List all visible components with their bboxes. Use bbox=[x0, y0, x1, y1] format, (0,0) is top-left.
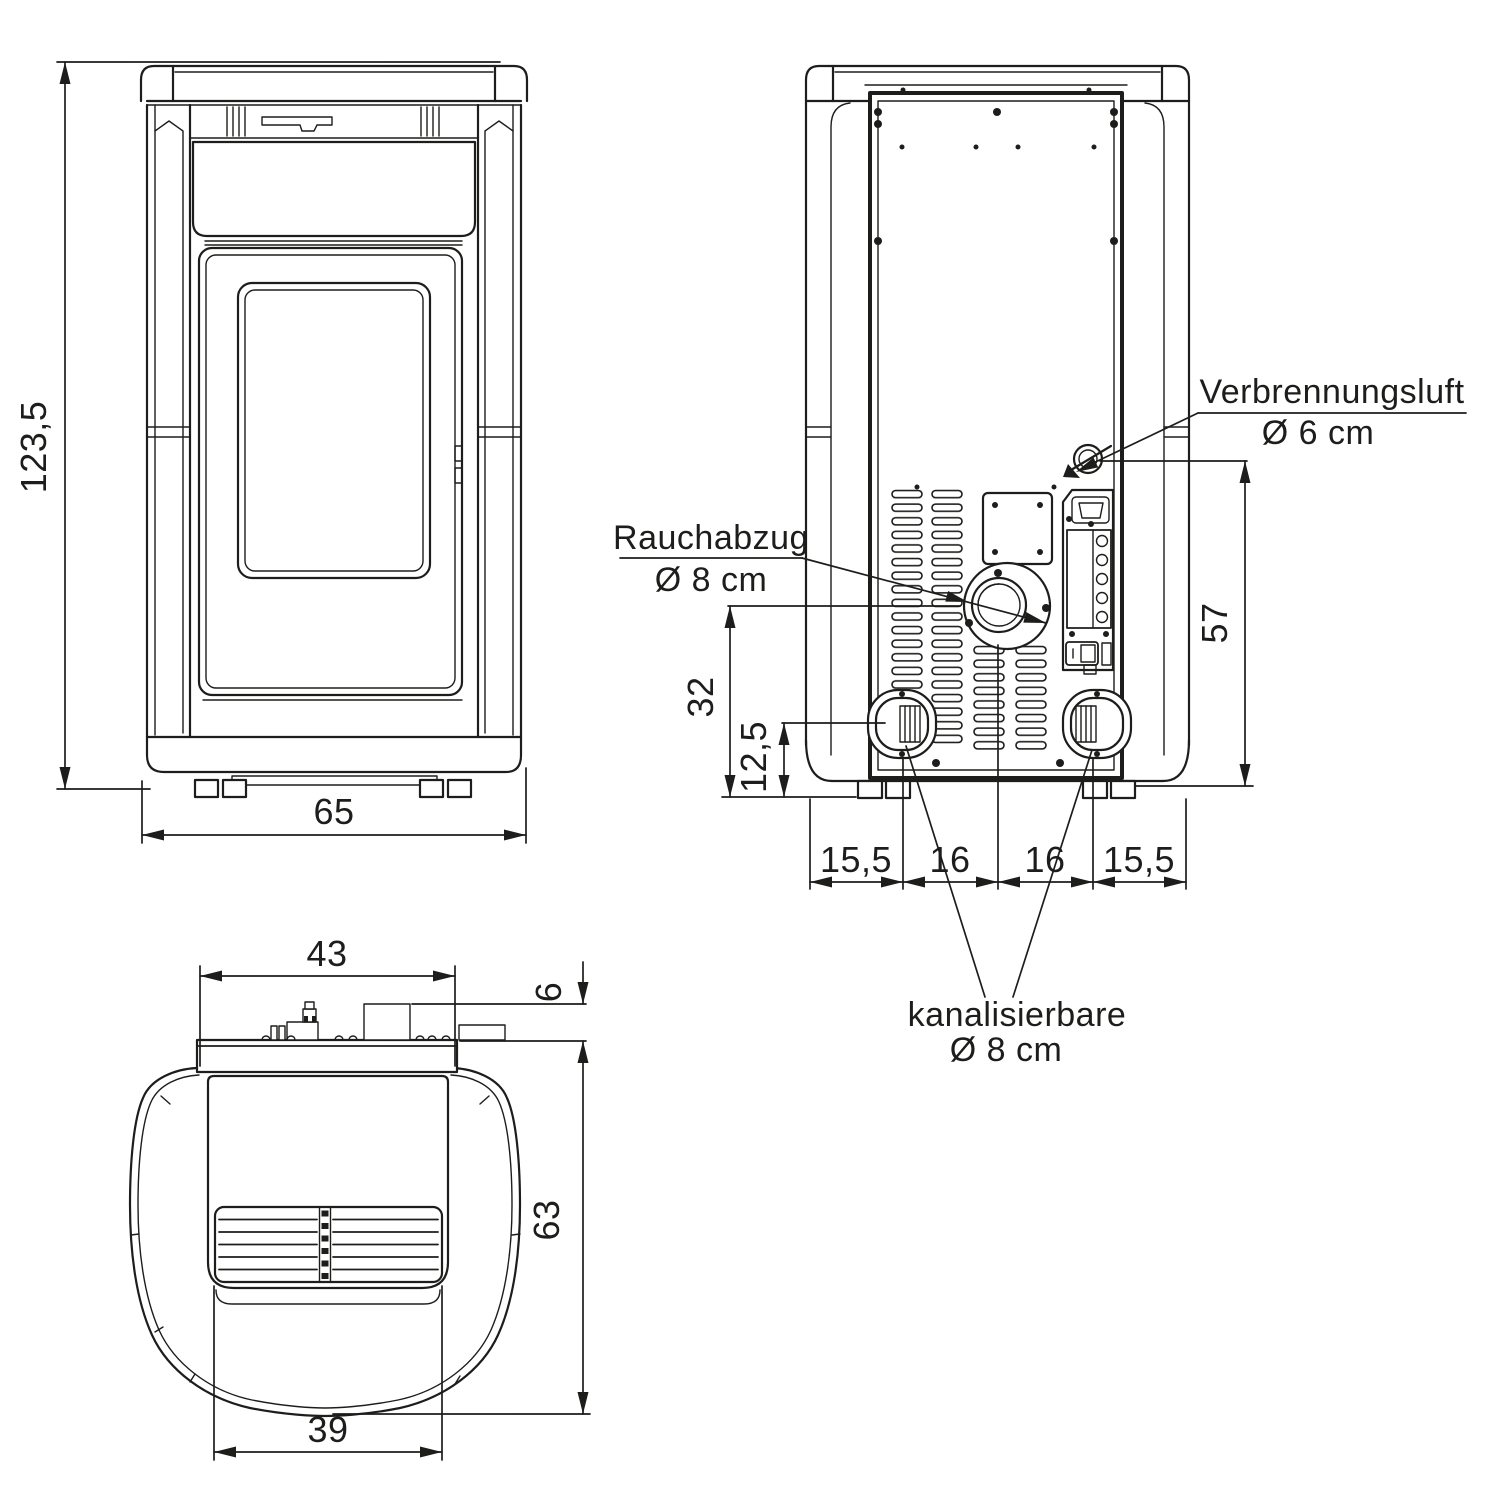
dim-spacing-3: 16 bbox=[1024, 839, 1065, 880]
foot bbox=[448, 780, 471, 797]
dim-duct-height: 12,5 bbox=[733, 721, 774, 793]
foot bbox=[858, 781, 882, 798]
dim-front-height: 123,5 bbox=[13, 401, 54, 494]
pellet-hopper-lid bbox=[193, 142, 475, 236]
duct-outlet-right bbox=[1063, 690, 1131, 758]
door-window bbox=[238, 283, 430, 578]
flue-stub-top bbox=[364, 1004, 410, 1040]
stove-dimension-drawing: 123,5 65 bbox=[0, 0, 1500, 1500]
vent-column bbox=[973, 645, 1006, 751]
bottom-spacing-chain: 15,5 16 16 15,5 bbox=[810, 645, 1186, 889]
front-base bbox=[147, 737, 521, 797]
foot bbox=[223, 780, 246, 797]
fan-grille bbox=[215, 1207, 442, 1282]
label-duct: kanalisierbare bbox=[908, 996, 1127, 1034]
foot bbox=[1083, 781, 1107, 798]
access-panel bbox=[983, 493, 1052, 564]
junction-box bbox=[287, 1022, 318, 1040]
top-back-strip bbox=[197, 1002, 505, 1072]
front-top-cap bbox=[141, 66, 527, 105]
label-duct-diameter: Ø 8 cm bbox=[950, 1031, 1063, 1069]
dim-front-width: 65 bbox=[313, 791, 354, 832]
top-view: 43 6 63 39 bbox=[130, 933, 590, 1460]
rear-view: Verbrennungsluft Ø 6 cm Rauchabzug Ø 8 c… bbox=[613, 66, 1466, 1069]
foot bbox=[195, 780, 218, 797]
hopper-handle bbox=[262, 117, 332, 131]
dim-flue-height: 32 bbox=[680, 676, 721, 717]
vent-column bbox=[1015, 645, 1048, 751]
front-hinge-band bbox=[190, 107, 478, 138]
dim-rear-offset: 6 bbox=[528, 982, 569, 1003]
fire-door bbox=[199, 248, 462, 700]
foot bbox=[1111, 781, 1135, 798]
front-side-pillars bbox=[147, 105, 521, 737]
dim-air-inlet-height: 57 bbox=[1194, 602, 1235, 643]
label-flue-diameter: Ø 8 cm bbox=[655, 561, 768, 599]
vent-column bbox=[931, 489, 964, 745]
electronics-panel bbox=[1063, 490, 1113, 674]
dim-spacing-4: 15,5 bbox=[1103, 839, 1175, 880]
duct-outlet-left bbox=[868, 690, 936, 758]
label-combustion-air-diameter: Ø 6 cm bbox=[1262, 414, 1375, 452]
technical-drawing-page: 123,5 65 bbox=[0, 0, 1500, 1500]
air-inlet-annotation: Verbrennungsluft Ø 6 cm bbox=[1076, 373, 1466, 472]
label-flue: Rauchabzug bbox=[613, 519, 809, 557]
dim-spacing-1: 15,5 bbox=[820, 839, 892, 880]
front-view: 123,5 65 bbox=[13, 62, 527, 843]
dim-grille-width: 39 bbox=[307, 1409, 348, 1450]
foot bbox=[886, 781, 910, 798]
top-box-right bbox=[459, 1025, 505, 1040]
smoke-outlet-flange bbox=[964, 563, 1050, 649]
front-dimensions: 123,5 65 bbox=[13, 62, 526, 843]
foot bbox=[420, 780, 443, 797]
dim-57-group: 57 bbox=[1135, 461, 1253, 786]
dim-spacing-2: 16 bbox=[929, 839, 970, 880]
dim-back-width: 43 bbox=[306, 933, 347, 974]
label-combustion-air: Verbrennungsluft bbox=[1199, 373, 1464, 411]
dim-depth: 63 bbox=[526, 1199, 567, 1240]
